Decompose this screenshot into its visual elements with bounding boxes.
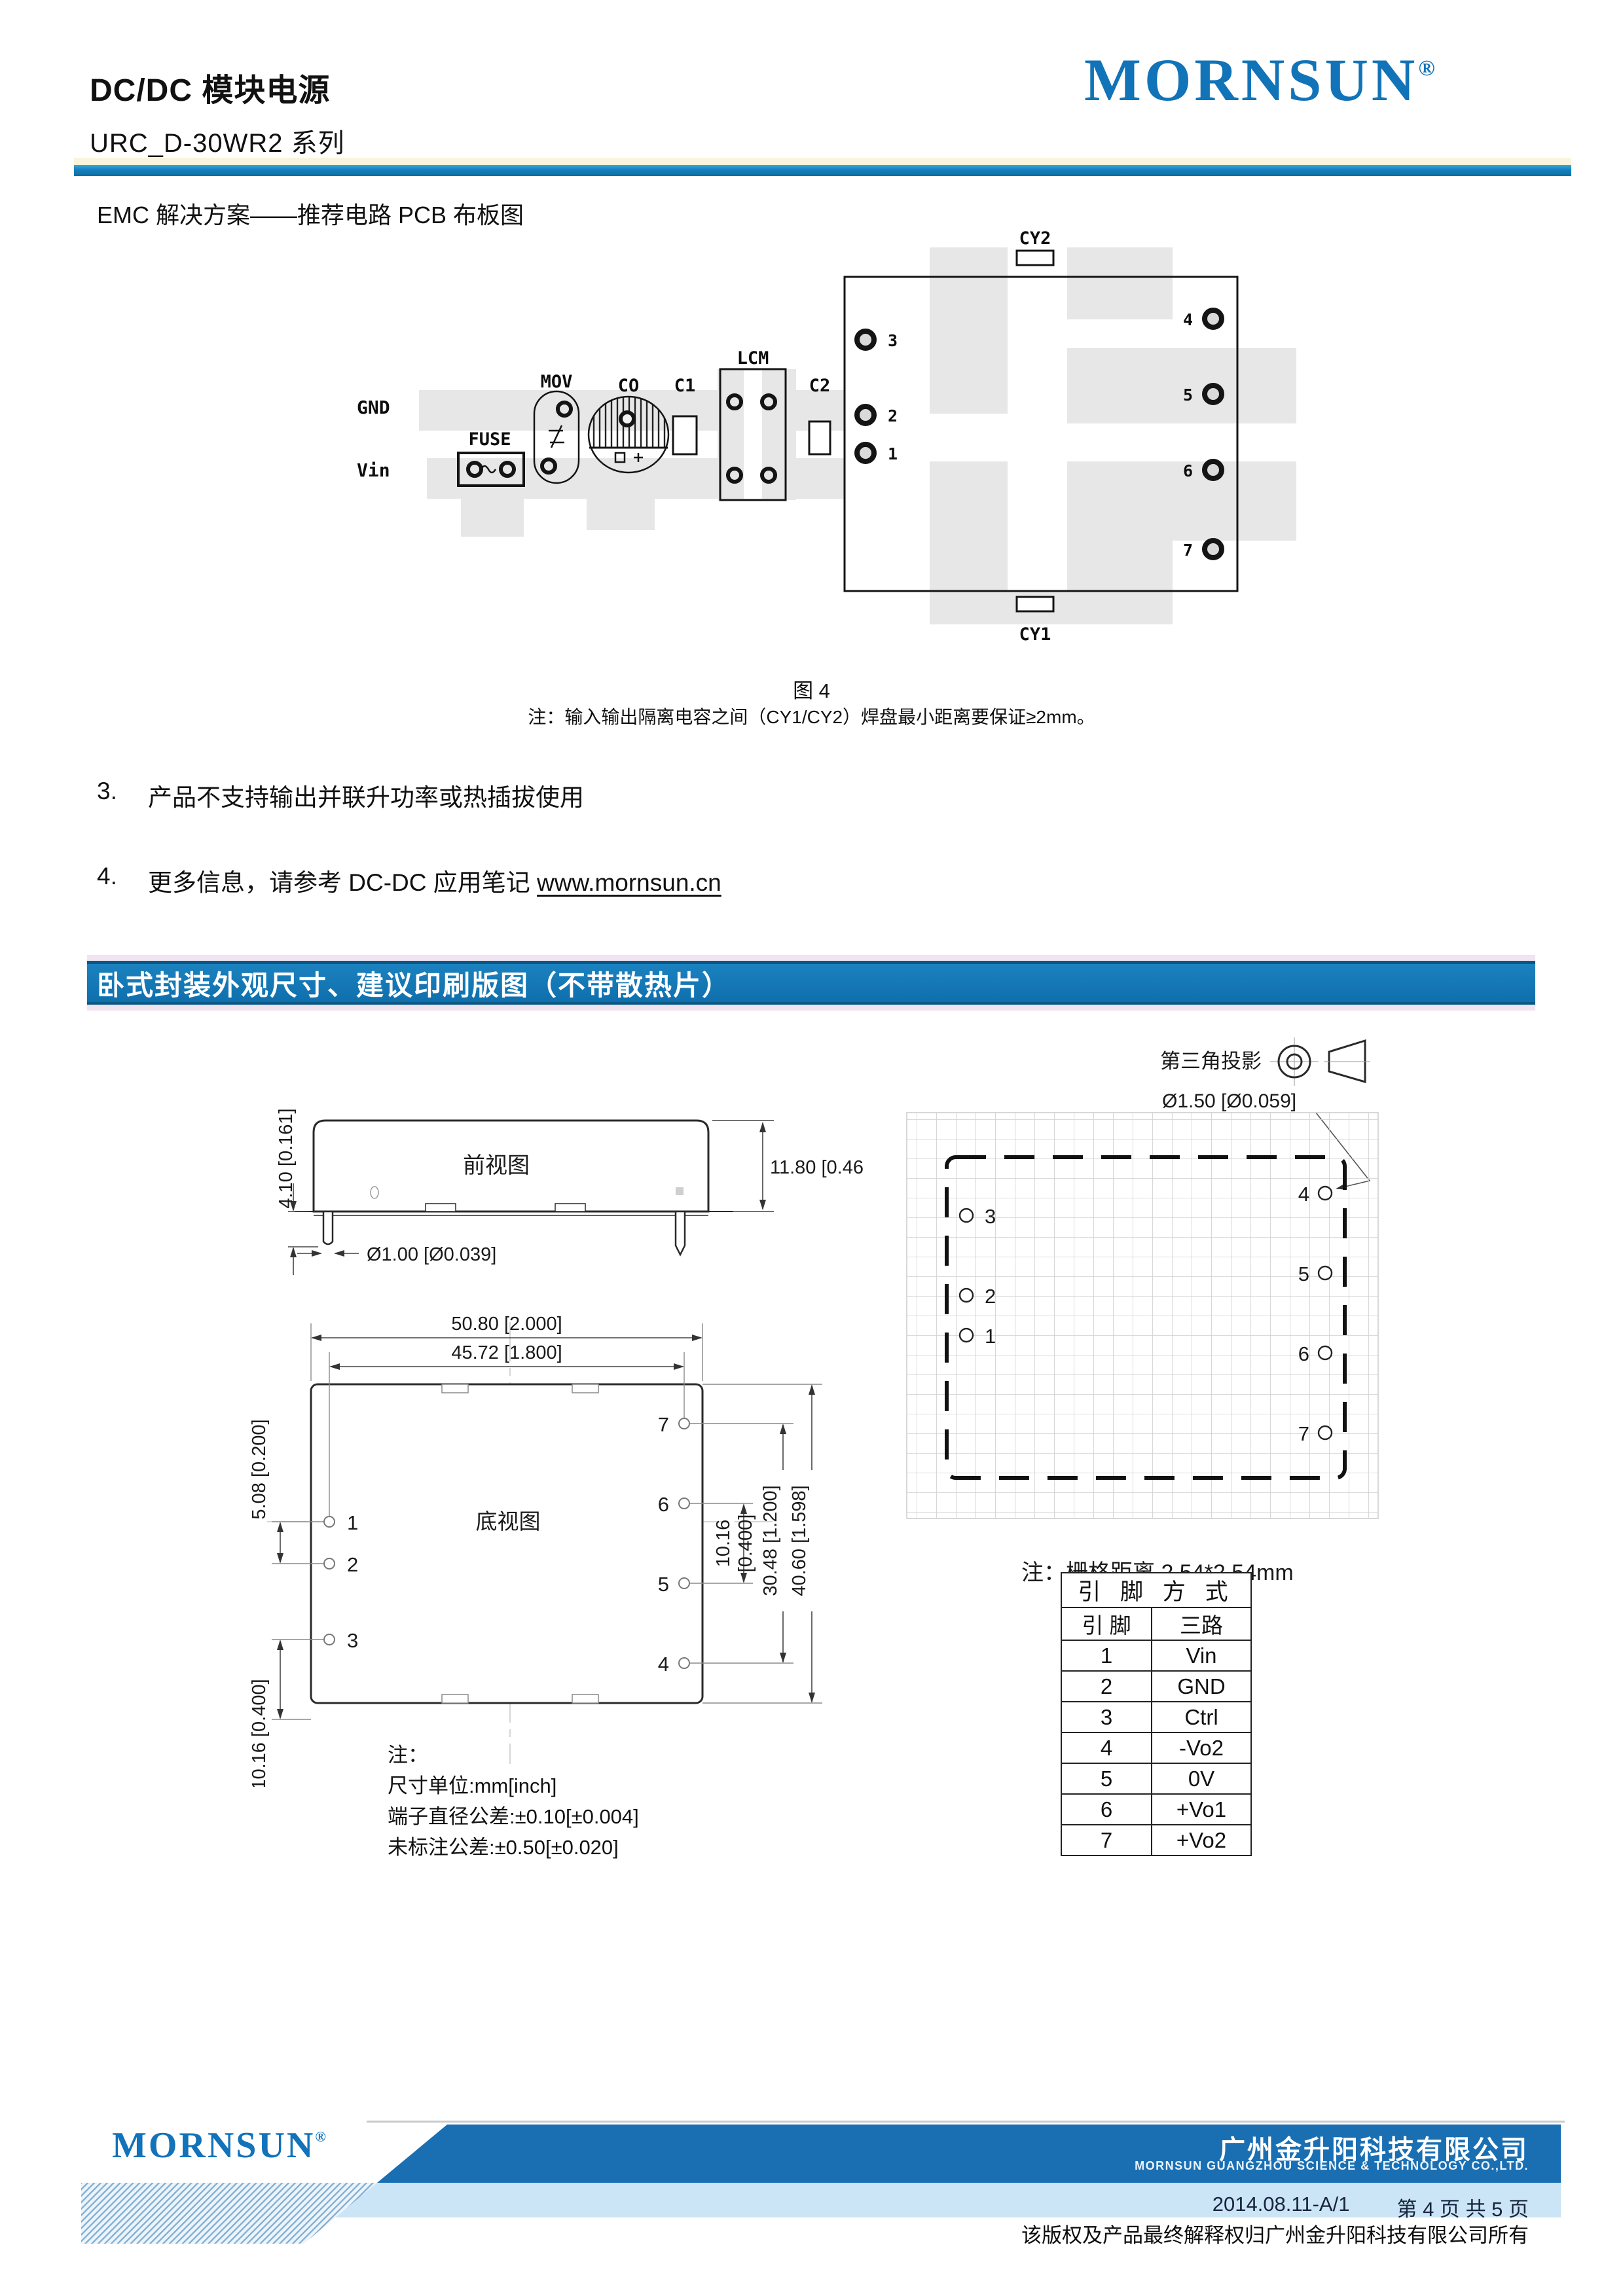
dim-left-top-label: 5.08 [0.200] <box>249 1419 270 1519</box>
pin-row-5: 50V <box>1061 1763 1251 1794</box>
c2-label: C2 <box>809 376 831 396</box>
cy1-label: CY1 <box>1019 624 1051 645</box>
front-view-drawing: 前视图 11.80 [0.465] 4.10 [0.161] Ø1.00 [Ø0… <box>275 1080 864 1302</box>
footer-topline <box>367 2121 1565 2123</box>
page-indicator: 第 4 页 共 5 页 <box>1396 2193 1529 2222</box>
remark-4: 4. 更多信息，请参考 DC-DC 应用笔记 www.mornsun.cn <box>97 863 721 898</box>
bottom-view-drawing: 1 2 3 7 6 5 4 底视图 50.80 [2.000] 45.72 [1… <box>249 1276 871 1787</box>
vin-label: Vin <box>357 459 390 481</box>
gnd-label: GND <box>357 397 390 418</box>
remark-3-number: 3. <box>97 778 148 813</box>
drawing-note-pin-tolerance: 端子直径公差:±0.10[±0.004] <box>388 1801 639 1832</box>
header-divider-cream <box>74 158 1571 165</box>
dim-pin-diameter-label: Ø1.00 [Ø0.039] <box>367 1244 496 1265</box>
module-outline <box>845 277 1237 591</box>
dim-left-bottom-label: 10.16 [0.400] <box>249 1679 270 1787</box>
datasheet-page: DC/DC 模块电源 URC_D-30WR2 系列 MORNSUN® EMC 解… <box>0 0 1623 2296</box>
registered-mark: ® <box>1418 56 1434 81</box>
hole6-label: 6 <box>1298 1342 1309 1365</box>
dim-right-inner-label-b: [0.400] <box>735 1515 756 1573</box>
pin-table-title: 引 脚 方 式 <box>1061 1573 1251 1607</box>
pin-row-6: 6+Vo1 <box>1061 1794 1251 1825</box>
dim-height-label: 11.80 [0.465] <box>770 1157 864 1178</box>
pin-row-2: 2GND <box>1061 1671 1251 1702</box>
module-pin3-label: 3 <box>888 331 898 350</box>
footer-registered-mark: ® <box>315 2128 327 2145</box>
fuse-label: FUSE <box>468 429 511 450</box>
cy2-footprint <box>1017 251 1053 265</box>
pin-table-col-pin: 引 脚 <box>1061 1607 1152 1640</box>
c2-footprint <box>809 422 830 454</box>
hole3-label: 3 <box>985 1205 996 1228</box>
module-pin5-label: 5 <box>1183 386 1193 404</box>
section-banner: 卧式封装外观尺寸、建议印刷版图（不带散热片） <box>87 961 1535 1005</box>
bv-pin7-label: 7 <box>658 1413 669 1436</box>
module-pin4-label: 4 <box>1183 310 1193 329</box>
hole-diameter-label: Ø1.50 [Ø0.059] <box>1162 1090 1296 1112</box>
pin-right <box>676 1211 685 1255</box>
dim-height <box>712 1121 774 1211</box>
remark-3: 3. 产品不支持输出并联升功率或热插拔使用 <box>97 778 584 813</box>
dim-pin-length-label: 4.10 [0.161] <box>276 1108 297 1208</box>
remark-3-text: 产品不支持输出并联升功率或热插拔使用 <box>148 778 584 813</box>
footer-company-en: MORNSUN GUANGZHOU SCIENCE & TECHNOLOGY C… <box>743 2159 1529 2173</box>
projection-label: 第三角投影 <box>1160 1050 1262 1073</box>
module-pin7-label: 7 <box>1183 541 1193 560</box>
pin-left <box>323 1211 333 1244</box>
cy1-footprint <box>1017 597 1053 611</box>
hole5-label: 5 <box>1298 1263 1309 1285</box>
drawing-notes: 注： 尺寸单位:mm[inch] 端子直径公差:±0.10[±0.004] 未标… <box>388 1740 639 1863</box>
hole4-label: 4 <box>1298 1183 1309 1206</box>
lcm-label: LCM <box>737 348 769 368</box>
hole2-label: 2 <box>985 1285 996 1308</box>
module-pin1-label: 1 <box>888 444 898 463</box>
series-subtitle: URC_D-30WR2 系列 <box>90 122 345 160</box>
figure4-note: 注：输入输出隔离电容之间（CY1/CY2）焊盘最小距离要保证≥2mm。 <box>0 703 1623 729</box>
emc-pcb-figure: GND Vin FUSE MOV CO <box>327 223 1309 668</box>
co-label: CO <box>618 376 640 396</box>
cy2-label: CY2 <box>1019 228 1051 249</box>
pin-row-4: 4-Vo2 <box>1061 1732 1251 1763</box>
hole1-label: 1 <box>985 1325 996 1348</box>
dim-right-inner-label-a: 10.16 <box>713 1520 734 1568</box>
footer-copyright: 该版权及产品最终解释权归广州金升阳科技有限公司所有 <box>743 2219 1529 2248</box>
remark-4-text: 更多信息，请参考 DC-DC 应用笔记 www.mornsun.cn <box>148 863 721 898</box>
header-divider-blue <box>74 165 1571 176</box>
dim-width-inner-label: 45.72 [1.800] <box>451 1342 562 1363</box>
dim-right-outer-label: 40.60 [1.598] <box>789 1485 810 1596</box>
pin-row-3: 3Ctrl <box>1061 1702 1251 1732</box>
bv-pin2-label: 2 <box>347 1553 358 1576</box>
page-title: DC/DC 模块电源 <box>90 64 330 110</box>
pin-assignment-table: 引 脚 方 式 引 脚 三路 1Vin 2GND 3Ctrl 4-Vo2 50V… <box>1061 1572 1252 1856</box>
pin-table-col-route: 三路 <box>1152 1607 1251 1640</box>
projection-circle-icon <box>1270 1037 1319 1086</box>
module-outline <box>311 1384 702 1703</box>
footer-version-row: 2014.08.11-A/1 第 4 页 共 5 页 <box>743 2193 1529 2222</box>
c1-footprint <box>673 416 697 454</box>
projection-cone-icon <box>1324 1041 1370 1082</box>
body-mark-right <box>676 1187 684 1195</box>
bv-pin6-label: 6 <box>658 1493 669 1516</box>
bv-pin1-label: 1 <box>347 1511 358 1534</box>
remark-4-number: 4. <box>97 863 148 898</box>
mov-label: MOV <box>541 372 573 392</box>
module-pin2-label: 2 <box>888 406 898 425</box>
dim-right-mid-label: 30.48 [1.200] <box>760 1485 781 1596</box>
figure4-caption: 图 4 <box>0 674 1623 704</box>
footer-mornsun-logo: MORNSUN® <box>112 2125 328 2166</box>
bv-pin4-label: 4 <box>658 1653 669 1676</box>
front-view-label: 前视图 <box>463 1153 530 1178</box>
drawing-note-units: 尺寸单位:mm[inch] <box>388 1770 639 1801</box>
module-pin6-label: 6 <box>1183 461 1193 480</box>
bv-pin5-label: 5 <box>658 1573 669 1596</box>
bottom-view-label: 底视图 <box>476 1509 541 1534</box>
recommended-pcb-layout: 第三角投影 Ø1.50 [Ø0.059] 3 2 1 4 5 6 7 注：栅 <box>897 1021 1421 1610</box>
drawing-notes-title: 注： <box>388 1740 639 1770</box>
mornsun-website-link[interactable]: www.mornsun.cn <box>537 869 721 896</box>
mornsun-logo: MORNSUN® <box>1084 47 1435 113</box>
hole7-label: 7 <box>1298 1422 1309 1445</box>
dim-width-outer-label: 50.80 [2.000] <box>451 1314 562 1335</box>
doc-version: 2014.08.11-A/1 <box>1213 2193 1350 2222</box>
brand-wordmark: MORNSUN <box>1084 46 1418 113</box>
module-pads-left: 3 2 1 <box>857 331 898 463</box>
c1-label: C1 <box>674 376 696 396</box>
pin-row-7: 7+Vo2 <box>1061 1825 1251 1856</box>
pcb-traces <box>419 247 1296 624</box>
bv-pin3-label: 3 <box>347 1629 358 1652</box>
pin-row-1: 1Vin <box>1061 1640 1251 1671</box>
pcb-grid <box>907 1113 1378 1518</box>
footer-hatch-shape <box>81 2183 377 2244</box>
drawing-note-general-tolerance: 未标注公差:±0.50[±0.020] <box>388 1832 639 1863</box>
